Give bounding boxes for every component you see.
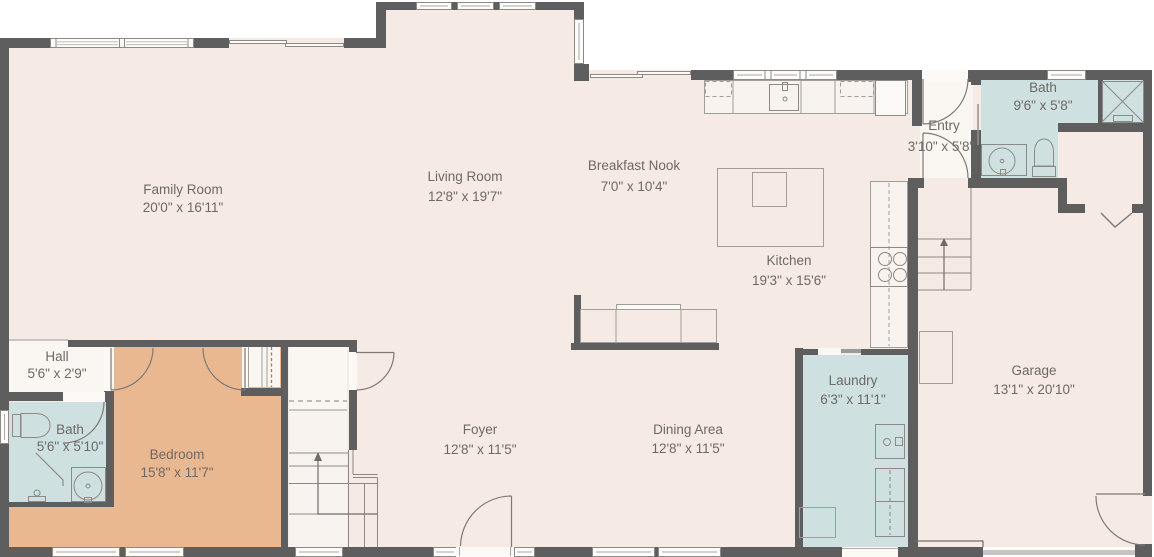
- svg-text:12'8" x 11'5": 12'8" x 11'5": [443, 442, 516, 457]
- svg-text:Garage: Garage: [1011, 363, 1056, 378]
- svg-text:Laundry: Laundry: [829, 373, 878, 388]
- svg-text:5'6" x 5'10": 5'6" x 5'10": [37, 439, 104, 454]
- svg-text:Bedroom: Bedroom: [150, 447, 205, 462]
- svg-text:3'10" x 5'8": 3'10" x 5'8": [908, 139, 975, 154]
- svg-text:12'8" x 11'5": 12'8" x 11'5": [651, 441, 724, 456]
- svg-text:Hall: Hall: [45, 349, 68, 364]
- svg-text:Kitchen: Kitchen: [766, 253, 811, 268]
- svg-text:Foyer: Foyer: [463, 422, 498, 437]
- svg-text:Living Room: Living Room: [427, 169, 502, 184]
- svg-text:Bath: Bath: [56, 422, 84, 437]
- svg-text:9'6" x 5'8": 9'6" x 5'8": [1013, 98, 1072, 113]
- svg-text:15'8" x 11'7": 15'8" x 11'7": [140, 465, 213, 480]
- svg-text:12'8" x 19'7": 12'8" x 19'7": [428, 189, 502, 204]
- svg-text:7'0" x 10'4": 7'0" x 10'4": [601, 179, 668, 194]
- svg-text:5'6" x 2'9": 5'6" x 2'9": [27, 366, 86, 381]
- svg-text:6'3" x 11'1": 6'3" x 11'1": [820, 392, 886, 407]
- svg-text:13'1" x 20'10": 13'1" x 20'10": [993, 382, 1075, 397]
- svg-text:19'3" x 15'6": 19'3" x 15'6": [752, 273, 826, 288]
- svg-text:20'0" x 16'11": 20'0" x 16'11": [143, 200, 224, 215]
- svg-text:Family Room: Family Room: [143, 182, 223, 197]
- svg-text:Dining Area: Dining Area: [653, 422, 723, 437]
- svg-text:Breakfast Nook: Breakfast Nook: [588, 158, 681, 173]
- svg-text:Bath: Bath: [1029, 80, 1057, 95]
- svg-text:Entry: Entry: [928, 118, 960, 133]
